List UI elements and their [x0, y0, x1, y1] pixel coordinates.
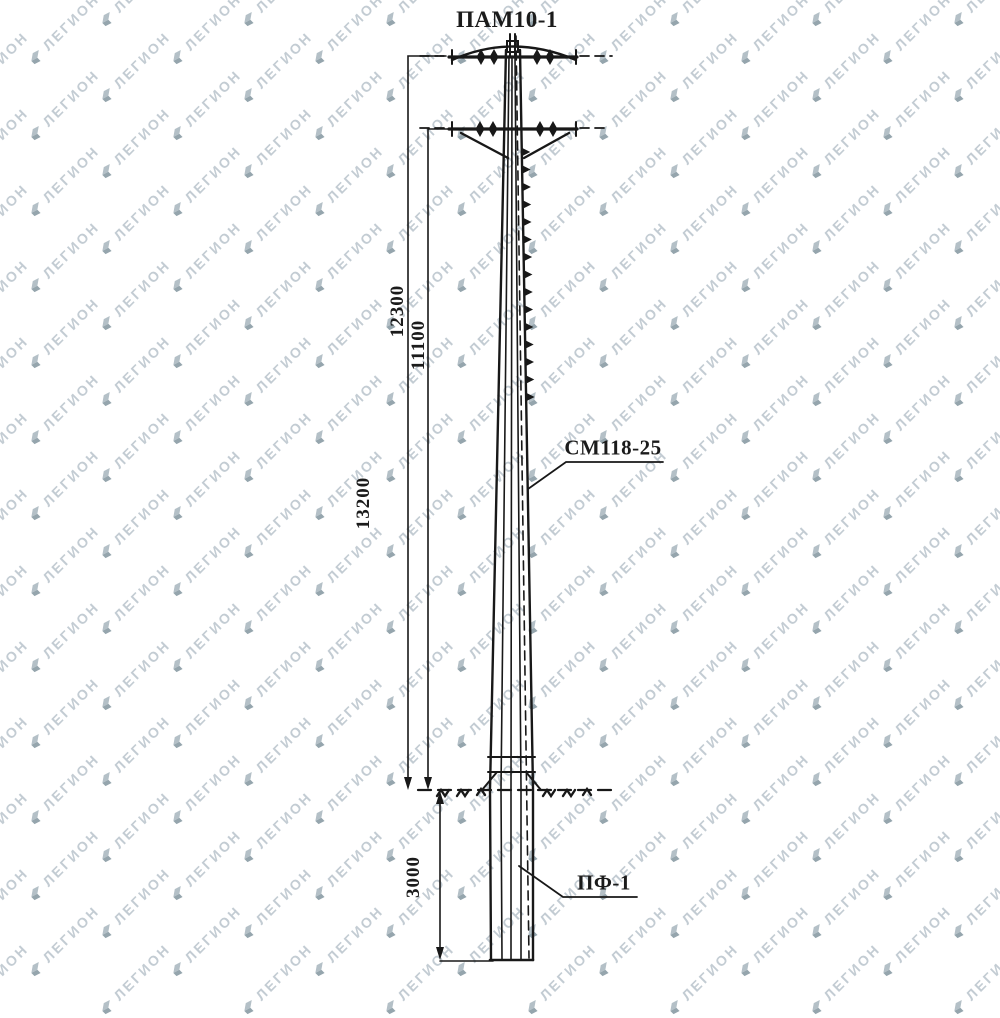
step-bolt: [525, 323, 533, 331]
ground-line: [418, 789, 612, 796]
step-bolt: [525, 306, 533, 314]
dimension-overall: 13200: [353, 477, 375, 530]
step-bolt: [526, 341, 534, 349]
step-bolt: [524, 218, 532, 226]
leader-pole-model: [528, 462, 663, 489]
pole-model-label: СМ118-25: [564, 436, 661, 461]
brace-right: [524, 133, 569, 158]
dimension-lines: [404, 56, 493, 961]
foundation-label: ПФ-1: [577, 871, 631, 896]
step-bolt: [526, 376, 534, 384]
pole-drawing: [0, 0, 1000, 1000]
pole-body: [482, 36, 541, 960]
step-bolt: [523, 166, 531, 174]
step-bolt: [527, 393, 535, 401]
step-bolt: [523, 183, 531, 191]
lower-crossarm: [420, 121, 606, 158]
dimension-lower-crossarm: 11100: [408, 320, 430, 370]
step-bolt: [523, 201, 531, 209]
top-assembly-label: ПАМ10-1: [456, 7, 558, 33]
step-bolt: [526, 358, 534, 366]
step-bolt: [524, 236, 532, 244]
dimension-embedment: 3000: [403, 856, 425, 898]
step-bolt: [524, 271, 532, 279]
brace-left: [461, 133, 508, 158]
step-bolt: [525, 288, 533, 296]
leader-lines: [519, 462, 663, 897]
dimension-top-crossarm: 12300: [387, 285, 409, 338]
step-bolt: [524, 253, 532, 261]
